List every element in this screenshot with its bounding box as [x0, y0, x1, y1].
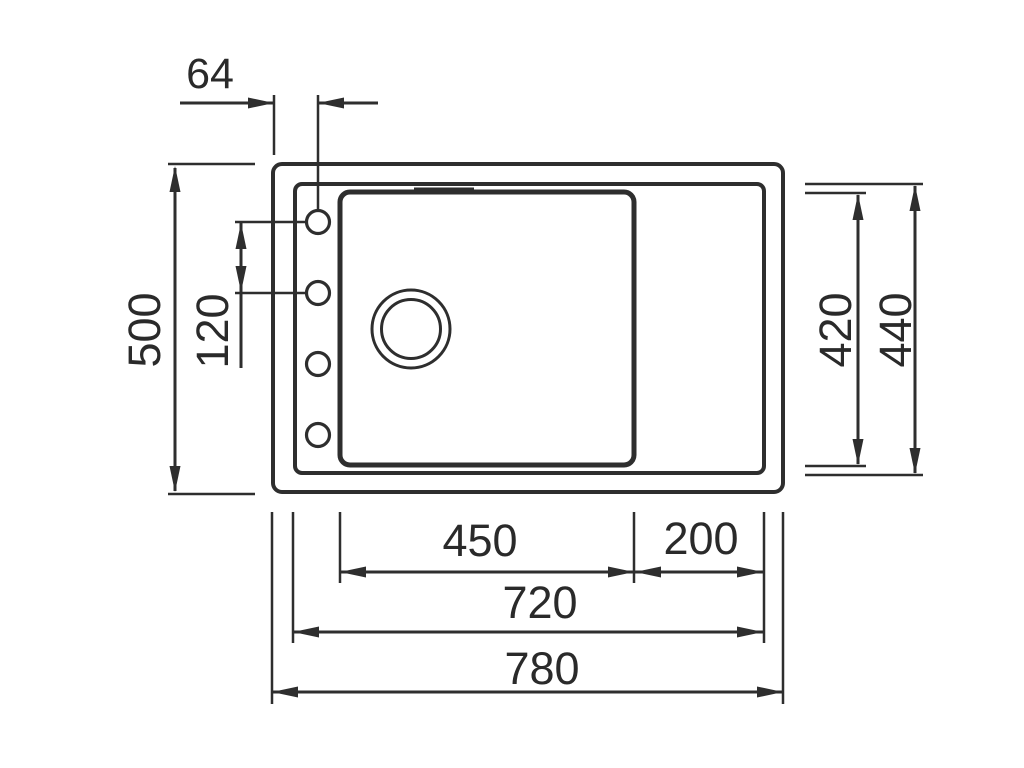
sink-bowl: [340, 192, 634, 465]
dimension-overall-width: 780: [272, 643, 783, 698]
arrowhead-down-icon: [236, 266, 247, 292]
arrowhead-right-icon: [608, 567, 634, 578]
arrowhead-left-icon: [293, 627, 319, 638]
dimension-label-420: 420: [810, 292, 861, 367]
arrowhead-left-icon: [340, 567, 366, 578]
dimension-label-500: 500: [119, 292, 170, 367]
dimension-drainer-width: 200: [635, 513, 763, 578]
dimension-label-120: 120: [187, 293, 238, 368]
sink-dimension-diagram: 64 500 120 420 440: [0, 0, 1024, 768]
arrowhead-down-icon: [853, 439, 864, 465]
dimension-label-200: 200: [663, 513, 738, 564]
tap-hole-4: [307, 424, 330, 447]
arrowhead-up-icon: [236, 223, 247, 249]
dimension-bowl-width: 450: [340, 515, 634, 578]
tap-hole-1: [307, 211, 330, 234]
arrowhead-left-icon: [635, 567, 661, 578]
dimension-label-440: 440: [870, 292, 921, 367]
arrowhead-down-icon: [910, 448, 921, 474]
arrowhead-left-icon: [318, 98, 344, 109]
tap-hole-2: [307, 282, 330, 305]
dimension-label-720: 720: [502, 577, 577, 628]
arrowhead-right-icon: [737, 567, 763, 578]
arrowhead-down-icon: [170, 466, 181, 492]
arrowhead-up-icon: [910, 185, 921, 211]
dimension-tap-hole-spacing: 120: [187, 222, 306, 369]
tap-hole-3: [307, 353, 330, 376]
drain-outer-circle: [372, 290, 450, 368]
arrowhead-right-icon: [757, 687, 783, 698]
dimension-label-450: 450: [442, 515, 517, 566]
arrowhead-right-icon: [737, 627, 763, 638]
dimension-label-64: 64: [186, 50, 234, 98]
arrowhead-right-icon: [248, 98, 274, 109]
arrowhead-up-icon: [170, 166, 181, 192]
sink-inner-rim: [295, 184, 764, 473]
sink-body: [273, 164, 783, 492]
dimension-label-780: 780: [504, 643, 579, 694]
sink-outer-edge: [273, 164, 783, 492]
dimension-bowl-depth: 420: [805, 193, 866, 466]
dimension-rim-width: 720: [293, 577, 763, 638]
drain-inner-circle: [382, 300, 441, 359]
arrowhead-up-icon: [853, 194, 864, 220]
arrowhead-left-icon: [272, 687, 298, 698]
